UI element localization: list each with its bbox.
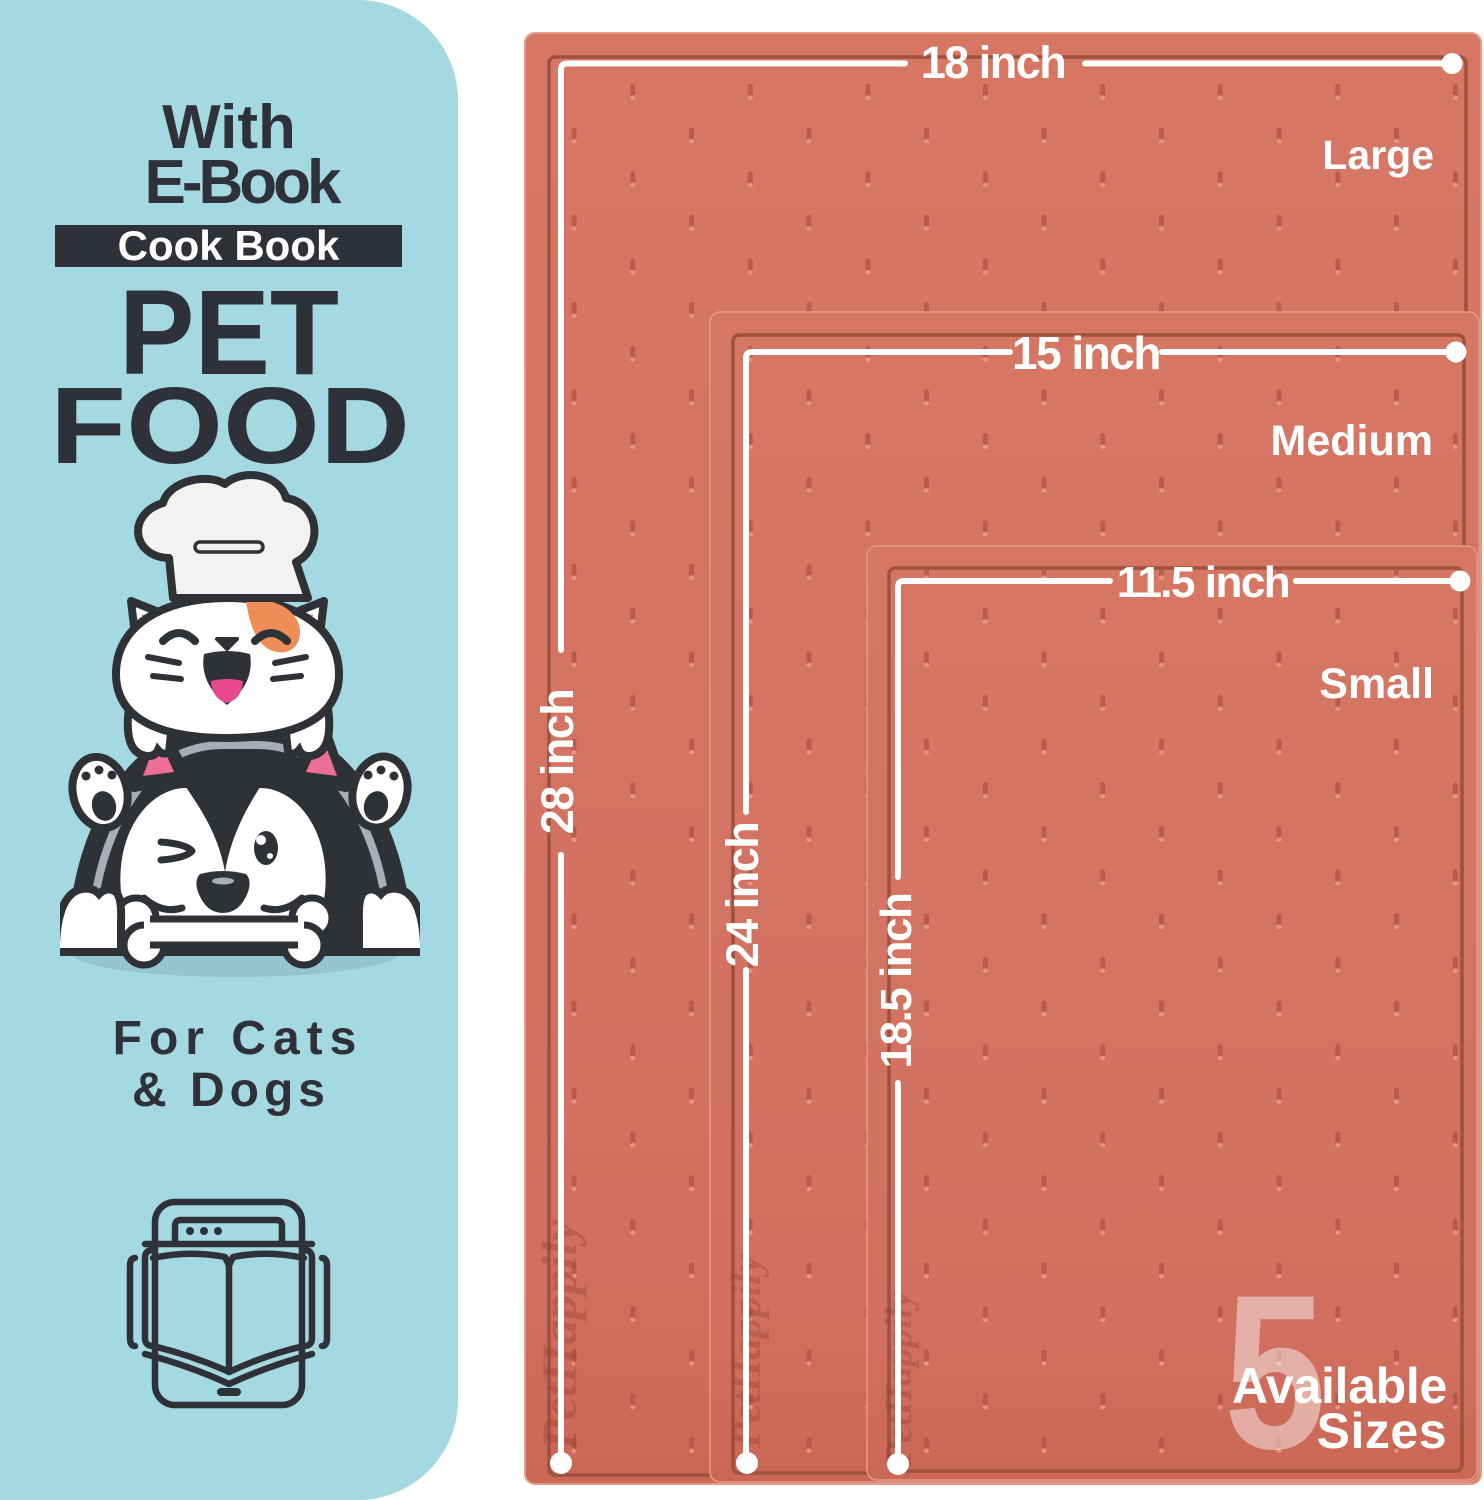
svg-text:18 inch: 18 inch bbox=[921, 37, 1066, 88]
svg-text:24 inch: 24 inch bbox=[717, 823, 768, 968]
svg-text:28 inch: 28 inch bbox=[532, 690, 583, 835]
svg-text:Sizes: Sizes bbox=[1317, 1403, 1447, 1459]
svg-text:15 inch: 15 inch bbox=[1012, 327, 1160, 379]
svg-text:11.5 inch: 11.5 inch bbox=[1117, 558, 1289, 607]
svg-text:Large: Large bbox=[1322, 132, 1434, 178]
svg-text:Small: Small bbox=[1319, 660, 1434, 708]
svg-text:Medium: Medium bbox=[1271, 417, 1433, 465]
svg-text:18.5 inch: 18.5 inch bbox=[872, 894, 921, 1069]
